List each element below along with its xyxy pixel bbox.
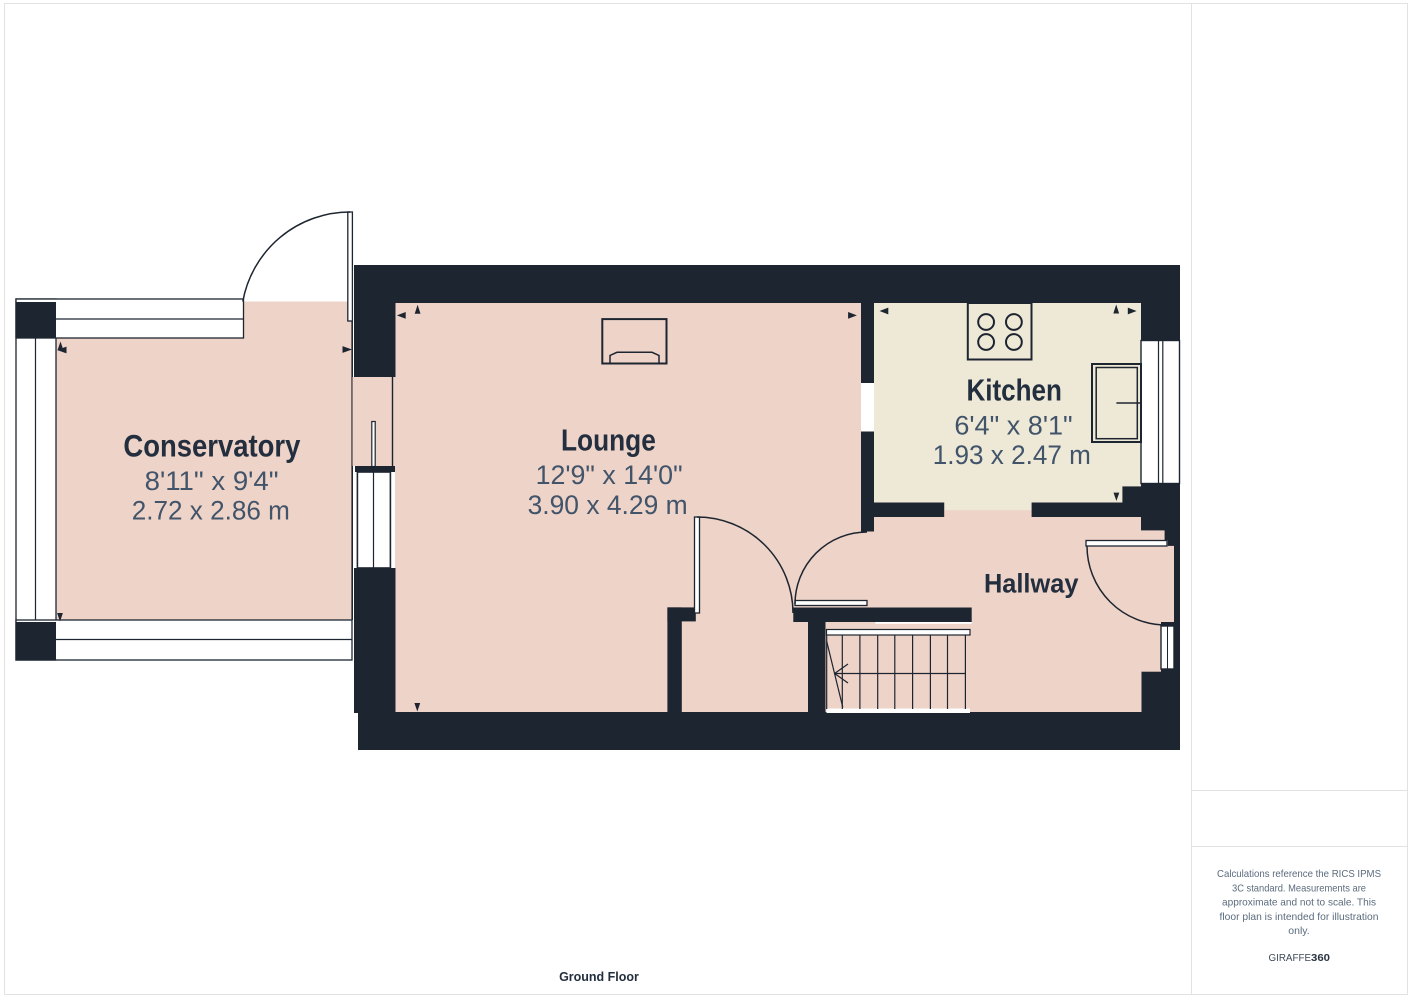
svg-text:2.72 x 2.86 m: 2.72 x 2.86 m [132,496,290,526]
svg-text:floor plan is intended for ill: floor plan is intended for illustration [1220,911,1379,923]
svg-text:6'4" x 8'1": 6'4" x 8'1" [954,411,1072,441]
svg-text:3C standard. Measurements are: 3C standard. Measurements are [1232,882,1366,894]
svg-text:8'11" x 9'4": 8'11" x 9'4" [145,466,279,496]
svg-text:Ground Floor: Ground Floor [559,970,639,984]
svg-text:12'9" x 14'0": 12'9" x 14'0" [536,460,683,490]
svg-text:1.93 x 2.47 m: 1.93 x 2.47 m [933,440,1091,470]
svg-text:approximate and not to scale.: approximate and not to scale. This [1222,897,1376,909]
svg-text:only.: only. [1288,925,1309,937]
svg-text:Kitchen: Kitchen [966,373,1062,407]
svg-text:Conservatory: Conservatory [123,428,300,464]
svg-text:Calculations reference the RIC: Calculations reference the RICS IPMS [1217,868,1381,880]
svg-text:Lounge: Lounge [561,423,656,457]
svg-text:Hallway: Hallway [984,569,1079,599]
svg-text:3.90 x 4.29 m: 3.90 x 4.29 m [528,490,688,520]
svg-text:GIRAFFE360: GIRAFFE360 [1269,952,1331,964]
